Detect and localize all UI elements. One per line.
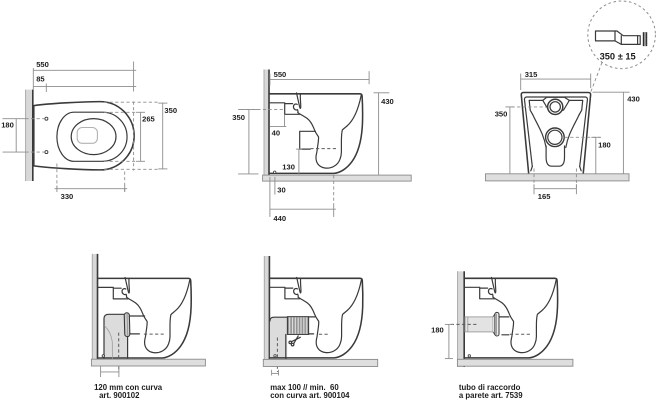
svg-text:85: 85 <box>36 74 45 83</box>
svg-text:180: 180 <box>431 326 444 335</box>
svg-text:430: 430 <box>381 97 394 106</box>
svg-text:350 ± 15: 350 ± 15 <box>600 52 636 62</box>
svg-text:350: 350 <box>164 106 177 115</box>
svg-text:350: 350 <box>495 110 508 119</box>
svg-text:30: 30 <box>277 186 285 195</box>
svg-text:350: 350 <box>232 113 245 122</box>
svg-text:165: 165 <box>538 192 551 201</box>
svg-text:550: 550 <box>36 60 49 69</box>
svg-text:180: 180 <box>1 121 14 130</box>
svg-text:550: 550 <box>274 70 287 79</box>
svg-text:a parete art. 7539: a parete art. 7539 <box>459 391 523 400</box>
svg-text:art. 900102: art. 900102 <box>99 391 140 400</box>
svg-text:265: 265 <box>142 115 155 124</box>
svg-text:330: 330 <box>61 192 74 201</box>
svg-text:con curva art. 900104: con curva art. 900104 <box>270 391 350 400</box>
svg-text:315: 315 <box>525 70 538 79</box>
svg-text:440: 440 <box>273 214 286 223</box>
svg-text:180: 180 <box>598 140 611 149</box>
svg-text:40: 40 <box>272 128 280 137</box>
svg-text:430: 430 <box>627 94 640 103</box>
svg-text:130: 130 <box>282 163 295 172</box>
